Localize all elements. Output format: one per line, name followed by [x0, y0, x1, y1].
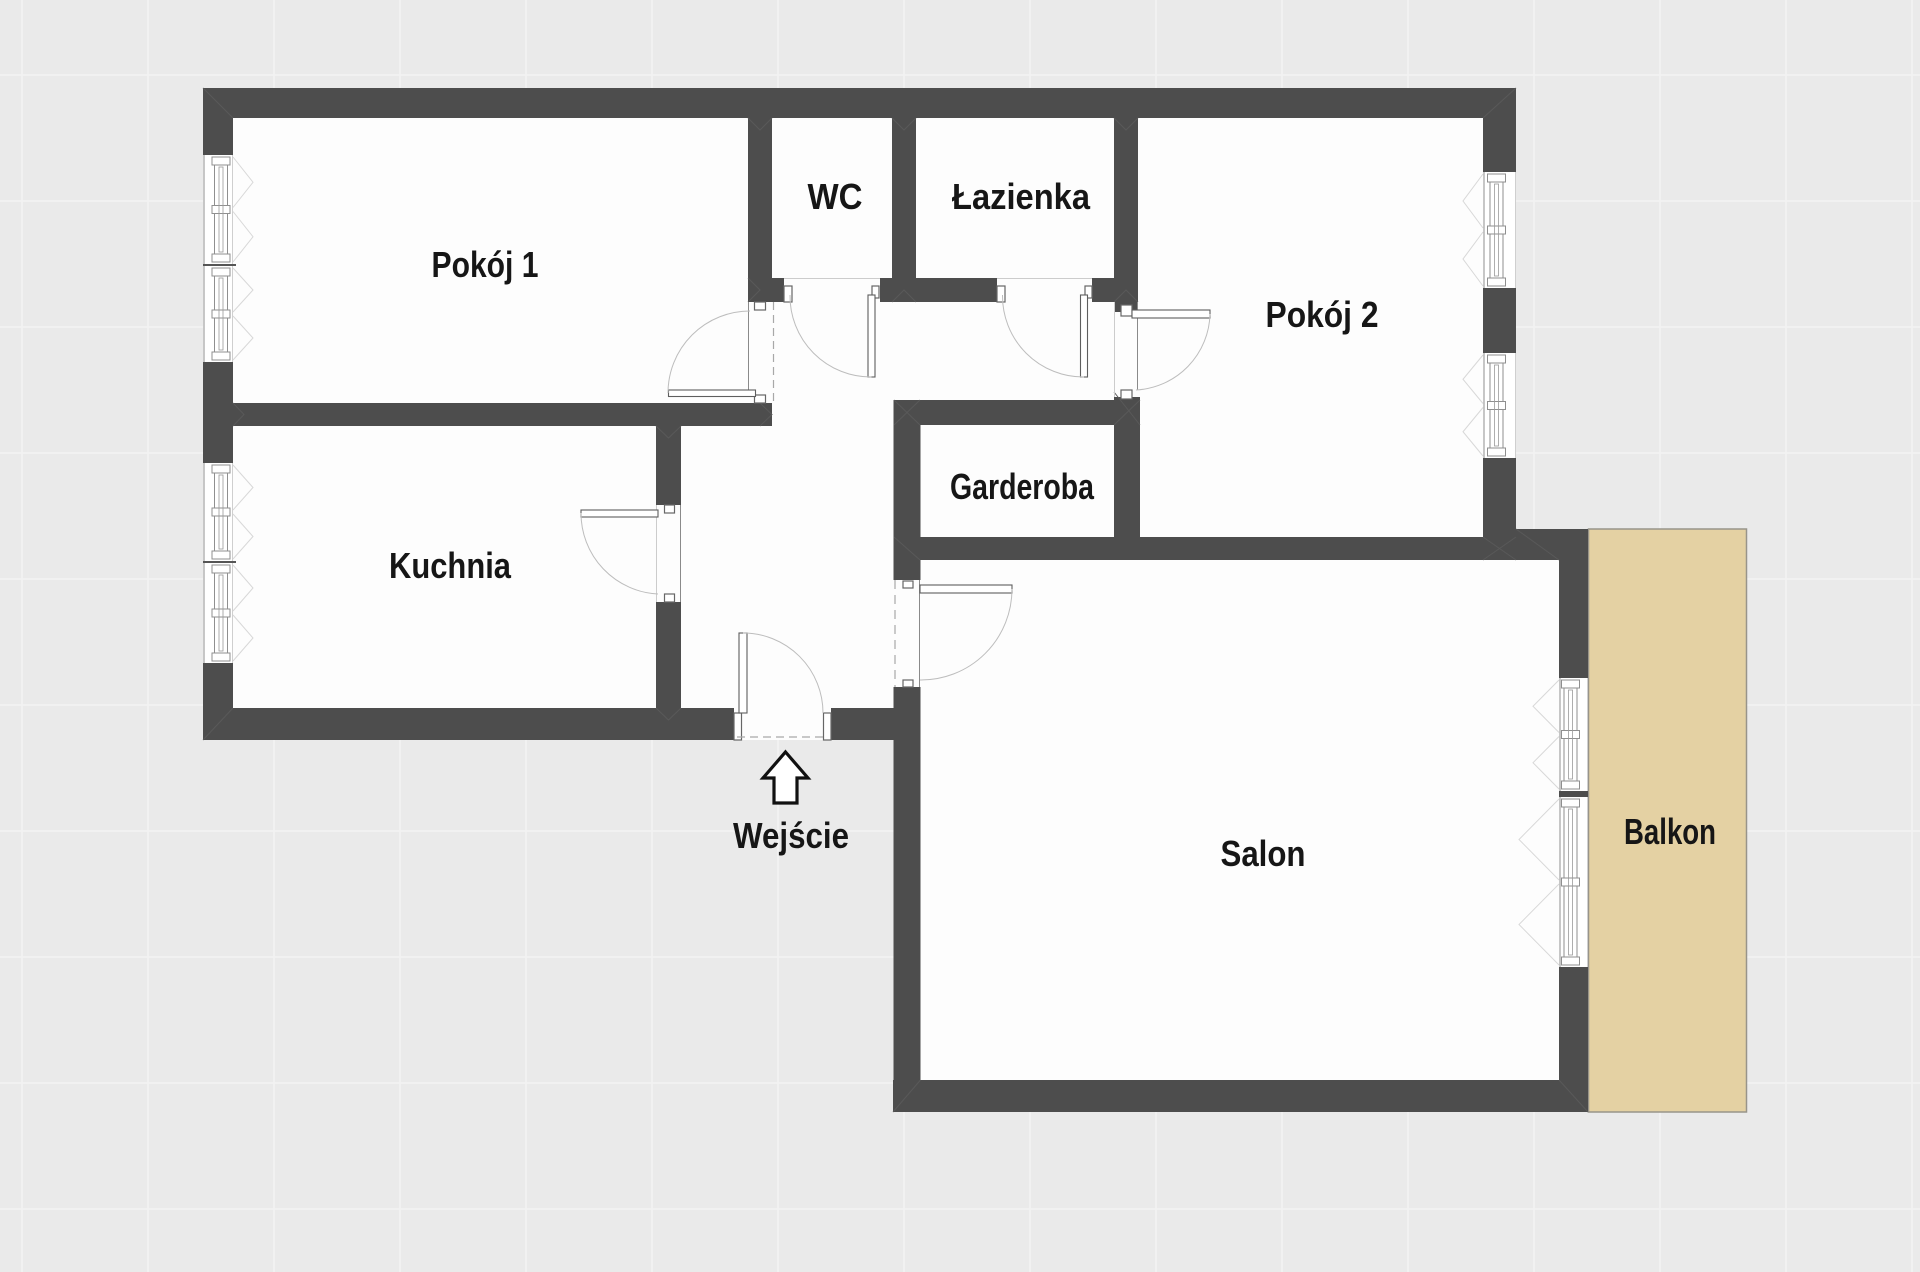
svg-text:Garderoba: Garderoba [950, 466, 1095, 507]
svg-text:Kuchnia: Kuchnia [389, 545, 512, 586]
svg-text:Łazienka: Łazienka [952, 176, 1091, 217]
svg-text:Wejście: Wejście [733, 815, 849, 856]
svg-text:Salon: Salon [1221, 833, 1306, 874]
svg-text:Pokój 1: Pokój 1 [432, 244, 539, 285]
svg-text:WC: WC [808, 176, 863, 217]
svg-text:Pokój 2: Pokój 2 [1266, 294, 1379, 335]
svg-text:Balkon: Balkon [1624, 811, 1716, 852]
